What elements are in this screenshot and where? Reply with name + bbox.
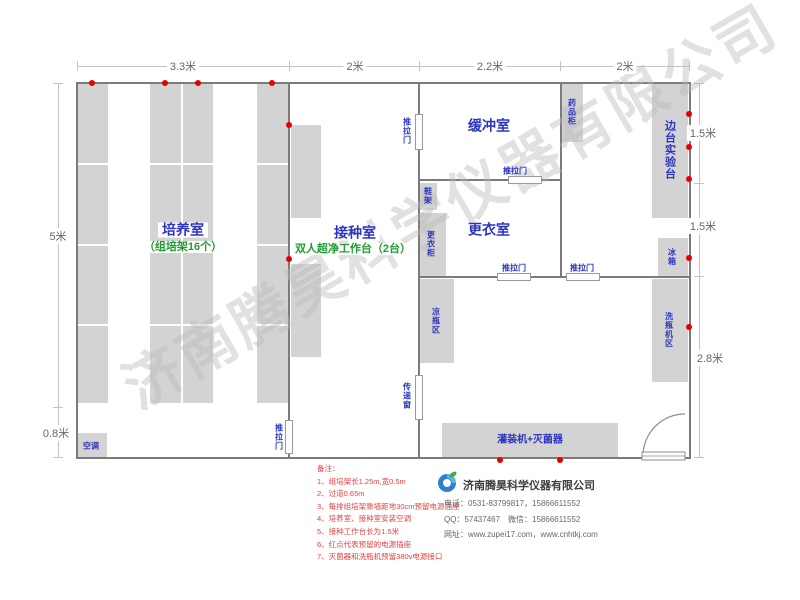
- wall-bottom: [76, 457, 691, 459]
- bottle-washer-label: 洗瓶机区: [665, 312, 674, 348]
- dim-line-left: [58, 83, 59, 458]
- dim-tick: [694, 276, 704, 277]
- note-item: 5、接种工作台长为1.5米: [317, 526, 460, 539]
- note-item: 4、培养室、接种室安装空调: [317, 513, 460, 526]
- wardrobe-label: 更衣柜: [427, 231, 436, 258]
- culture-rack-column-3: [257, 83, 288, 403]
- power-socket-dot: [686, 176, 692, 182]
- power-socket-dot: [686, 324, 692, 330]
- sliding-door-buffer-dressing: [508, 176, 542, 184]
- sliding-door-cultivation: [285, 420, 293, 454]
- room-label-cultivation: 培养室: [158, 223, 208, 238]
- room-label-inoculation: 接种室: [330, 226, 380, 241]
- shoe-rack-label: 鞋架: [424, 187, 433, 205]
- side-bench-label: 边台实验台: [665, 120, 674, 180]
- dim-tick: [560, 61, 561, 71]
- note-item: 7、灭菌器和洗瓶机预留380v电源接口: [317, 551, 460, 564]
- sliding-door-label-1: 推拉门: [275, 424, 284, 451]
- dim-tick: [77, 61, 78, 71]
- dim-tick: [694, 83, 704, 84]
- transfer-window-label: 传递窗: [403, 383, 412, 410]
- dim-tick: [689, 61, 690, 71]
- dim-tick: [419, 61, 420, 71]
- wall-top: [76, 82, 691, 84]
- sliding-door-dressing-south-1: [497, 273, 531, 281]
- sliding-door-label-4: 推拉门: [502, 264, 526, 273]
- wall-dressing-south: [419, 276, 691, 278]
- room-sub-inoculation: 双人超净工作台（2台）: [292, 243, 414, 255]
- room-label-buffer: 缓冲室: [464, 119, 514, 134]
- note-item: 6、红点代表预留的电源插座: [317, 539, 460, 552]
- sliding-door-buffer-west: [415, 114, 423, 150]
- power-socket-dot: [286, 256, 292, 262]
- power-socket-dot: [557, 457, 563, 463]
- dim-tick: [53, 83, 63, 84]
- dim-right-3: 2.8米: [694, 350, 726, 366]
- transfer-window: [415, 375, 423, 420]
- dim-right-2: 1.5米: [687, 218, 719, 234]
- power-socket-dot: [686, 144, 692, 150]
- power-socket-dot: [497, 457, 503, 463]
- fridge-label: 冰箱: [668, 248, 677, 266]
- power-socket-dot: [162, 80, 168, 86]
- entrance-swing-door: [628, 400, 698, 462]
- company-name: 济南腾昊科学仪器有限公司: [463, 477, 595, 493]
- dim-tick: [289, 61, 290, 71]
- medicine-cabinet-label: 药品柜: [568, 99, 577, 126]
- room-label-dressing: 更衣室: [464, 223, 514, 238]
- sliding-door-label-5: 推拉门: [570, 264, 594, 273]
- dim-tick: [53, 457, 63, 458]
- clean-bench-2: [291, 264, 321, 357]
- dim-right-1: 1.5米: [687, 125, 719, 141]
- company-website: 网址：www.zupei17.com，www.cnhtkj.com: [444, 529, 598, 540]
- dim-left-1: 5米: [46, 228, 69, 244]
- dim-top-4: 2米: [613, 58, 636, 74]
- power-socket-dot: [286, 122, 292, 128]
- power-socket-dot: [89, 80, 95, 86]
- dim-top-1: 3.3米: [167, 58, 199, 74]
- culture-rack-column-1: [77, 83, 108, 403]
- company-phone: 电话：0531-83799817，15866611552: [444, 498, 580, 509]
- dim-left-2: 0.8米: [40, 425, 72, 441]
- floor-plan-canvas: 济南腾昊科学仪器有限公司 3.3米 2米 2.2米 2米 5米 0.8米 1.5…: [0, 0, 800, 600]
- sliding-door-label-3: 推拉门: [503, 167, 527, 176]
- power-socket-dot: [686, 111, 692, 117]
- power-socket-dot: [269, 80, 275, 86]
- dim-top-3: 2.2米: [474, 58, 506, 74]
- power-socket-dot: [686, 255, 692, 261]
- dim-top-2: 2米: [343, 58, 366, 74]
- air-conditioner-label: 空调: [83, 442, 99, 451]
- room-sub-cultivation: （组培架16个）: [141, 241, 225, 253]
- clean-bench-1: [291, 125, 321, 218]
- sliding-door-dressing-south-2: [566, 273, 600, 281]
- dim-tick: [694, 183, 704, 184]
- dim-tick: [53, 407, 63, 408]
- note-item: 3、每排组培架靠墙距地30cm预留电源插座: [317, 501, 460, 514]
- filling-sterilizer-label: 灌装机+灭菌器: [497, 436, 563, 445]
- bottle-cooling-label: 凉瓶区: [432, 308, 441, 335]
- company-logo-icon: [436, 470, 460, 494]
- company-qq-wechat: QQ：57437467 微信：15866611552: [444, 514, 580, 525]
- wall-left: [76, 82, 78, 459]
- sliding-door-label-2: 推拉门: [403, 118, 412, 145]
- power-socket-dot: [195, 80, 201, 86]
- wall-cultivation-inoculation: [288, 82, 290, 459]
